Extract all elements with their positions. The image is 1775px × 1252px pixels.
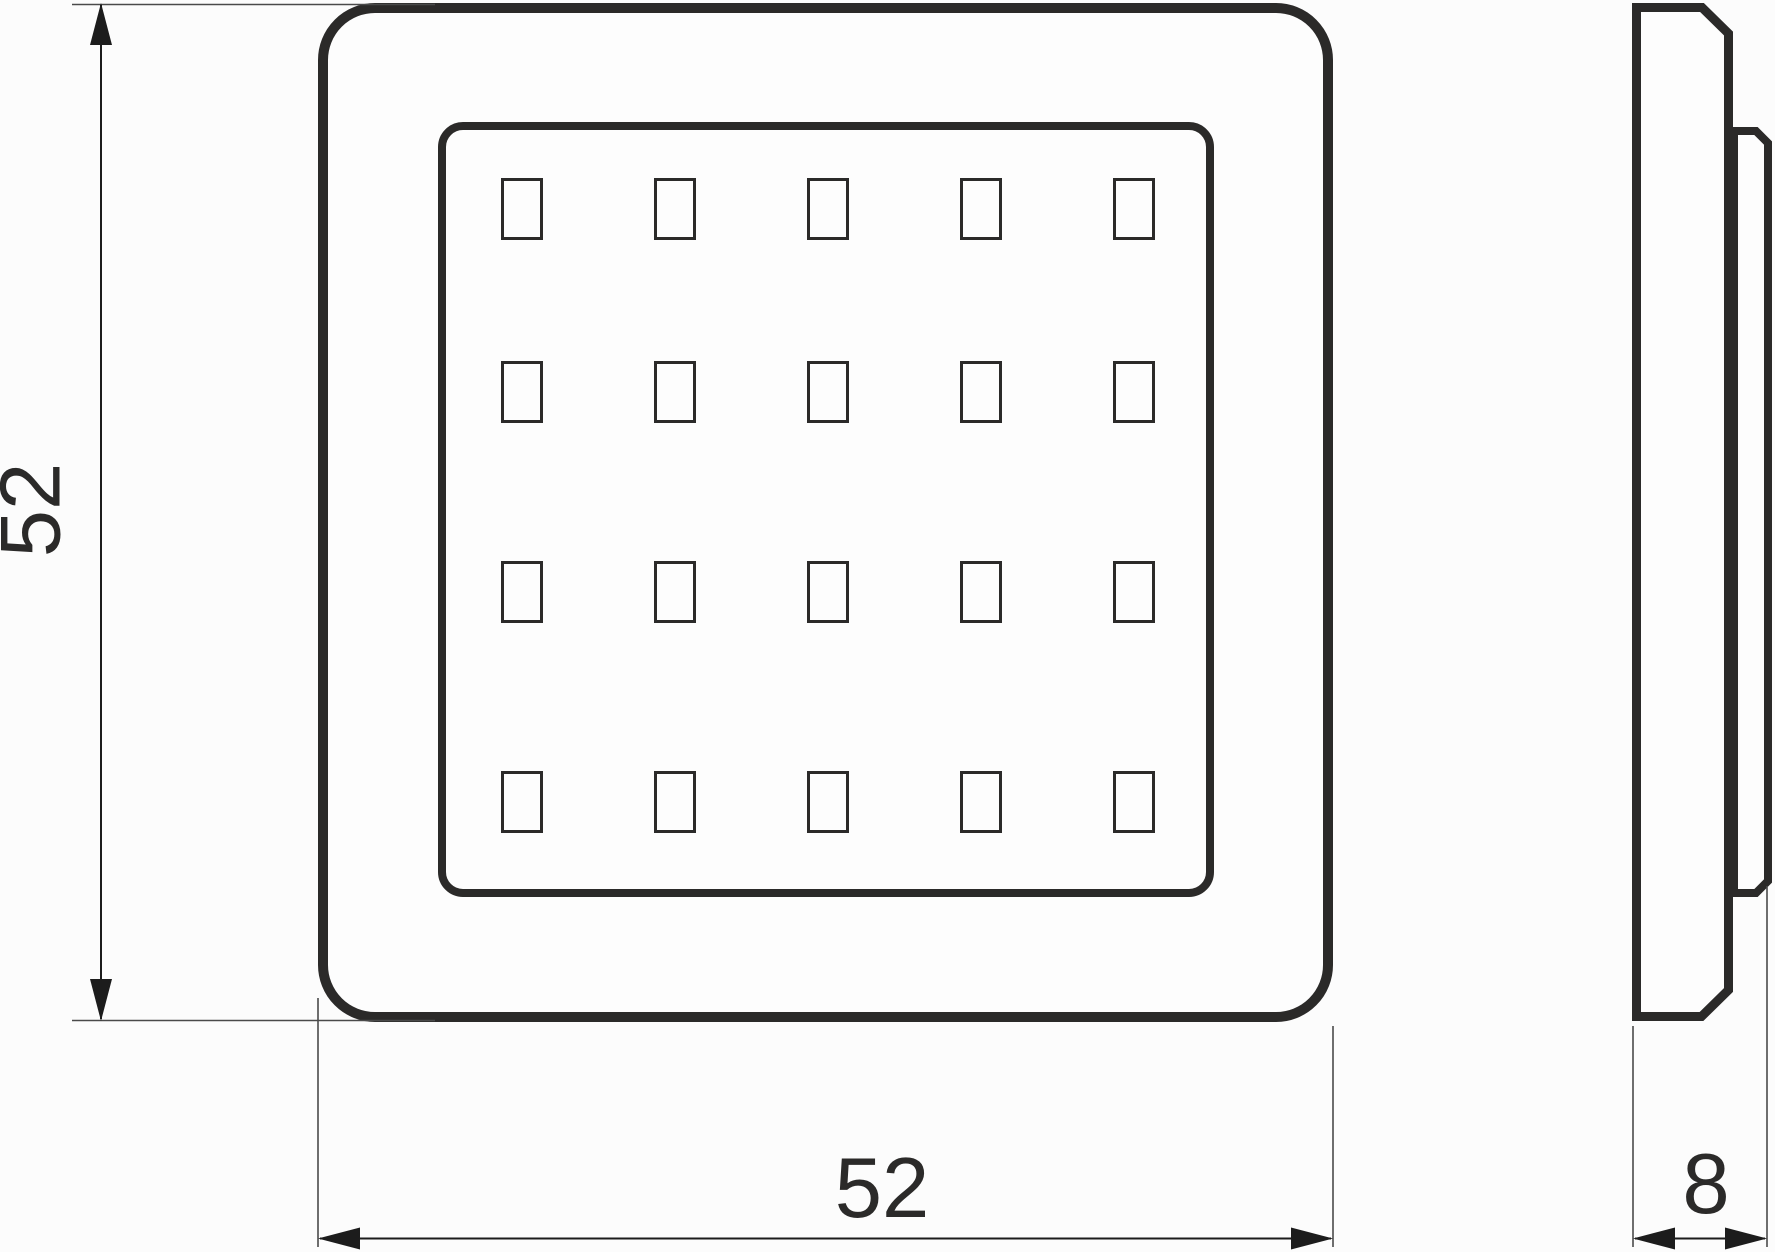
led-cell [1115, 363, 1154, 422]
led-cell [809, 563, 848, 622]
depth-dimension-label: 8 [1682, 1137, 1729, 1232]
front-view [323, 8, 1328, 1017]
led-cell [809, 363, 848, 422]
side-view-rear-housing [1734, 131, 1768, 893]
arrowhead-right-icon [1725, 1228, 1767, 1250]
arrowhead-right-icon [1291, 1228, 1333, 1250]
led-cell [503, 563, 542, 622]
led-cell [503, 180, 542, 239]
dimension-width: 52 [318, 998, 1333, 1250]
arrowhead-left-icon [318, 1228, 360, 1250]
led-cell [503, 773, 542, 832]
led-cell [962, 180, 1001, 239]
panel-outer-frame [323, 8, 1328, 1017]
led-cell [1115, 563, 1154, 622]
arrowhead-down-icon [90, 979, 112, 1021]
led-cell [809, 773, 848, 832]
technical-drawing-canvas: 52 52 8 [0, 0, 1775, 1252]
led-cell [1115, 773, 1154, 832]
led-cell [656, 180, 695, 239]
side-view [1637, 8, 1769, 1017]
led-cell [656, 773, 695, 832]
side-view-front-plate [1637, 8, 1729, 1017]
led-cell [656, 363, 695, 422]
height-dimension-label: 52 [0, 463, 79, 558]
led-cell [962, 563, 1001, 622]
led-cell [809, 180, 848, 239]
led-cell [503, 363, 542, 422]
led-cell [656, 563, 695, 622]
arrowhead-left-icon [1633, 1228, 1675, 1250]
led-cell [962, 363, 1001, 422]
arrowhead-up-icon [90, 3, 112, 45]
led-cell [1115, 180, 1154, 239]
width-dimension-label: 52 [835, 1141, 930, 1236]
led-cell [962, 773, 1001, 832]
